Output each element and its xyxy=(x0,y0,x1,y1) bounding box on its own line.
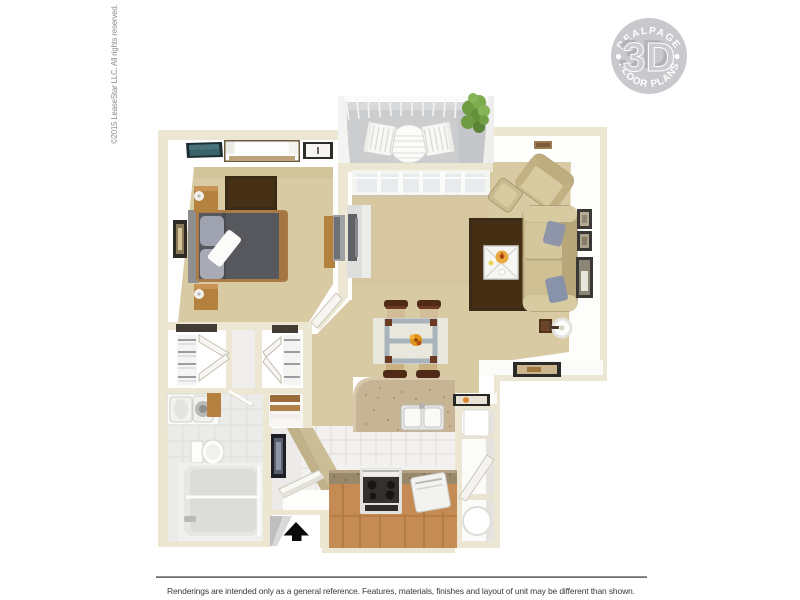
svg-text:3D: 3D xyxy=(623,34,675,80)
svg-text:Renderings are intended only a: Renderings are intended only as a genera… xyxy=(167,586,635,596)
svg-text:©2015 LeaseStar LLC. All right: ©2015 LeaseStar LLC. All rights reserved… xyxy=(110,4,119,144)
